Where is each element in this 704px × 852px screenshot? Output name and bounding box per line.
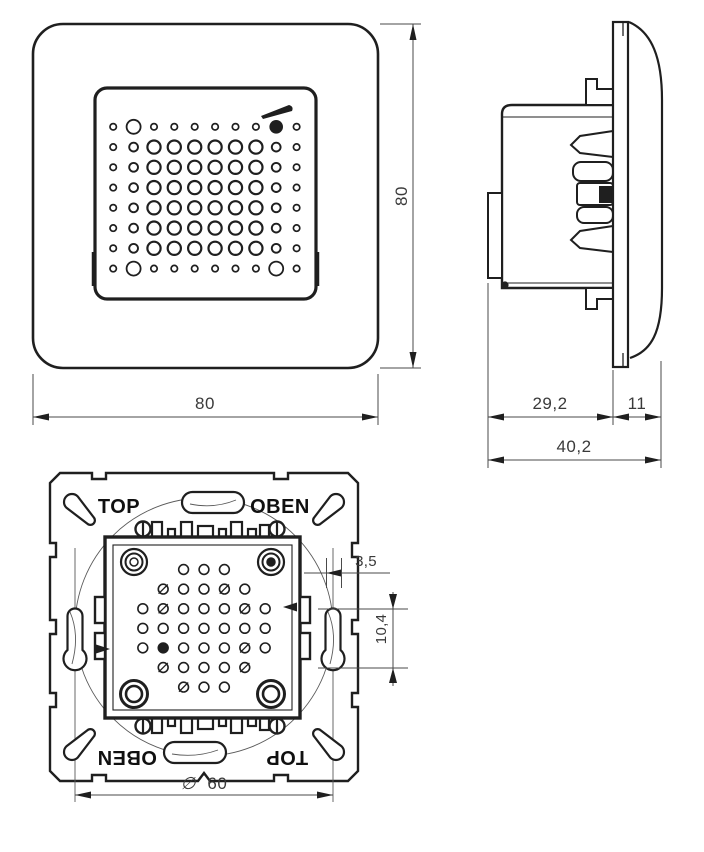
side-claw-tab-c — [577, 207, 613, 223]
dim-width-label: 80 — [195, 394, 215, 413]
boss-top-right — [258, 549, 284, 575]
center-slot-bottom — [164, 742, 226, 763]
dim-slot-width-label: 3,5 — [355, 553, 377, 570]
drawing-svg: 80 80 — [0, 0, 704, 852]
screw-slot-right — [322, 609, 345, 671]
label-oben-rotated: OBEN — [97, 746, 157, 768]
front-width-dimension: 80 — [33, 374, 378, 425]
screw-slot-left — [64, 609, 87, 671]
dim-height-label: 80 — [392, 186, 411, 206]
center-slot-top — [182, 492, 244, 513]
rear-view: TOP OBEN OBEN TOP 3,5 10,4 ∅ — [50, 473, 408, 802]
label-top-rotated: TOP — [266, 746, 308, 768]
side-depth-dimensions: 29,2 11 40,2 — [488, 283, 661, 468]
dim-diameter-label: ∅ 60 — [181, 774, 228, 793]
side-claw-screw — [599, 186, 612, 203]
grille-hole — [269, 120, 283, 134]
dim-slot-length-label: 10,4 — [373, 614, 390, 644]
side-body-corner — [501, 281, 508, 288]
label-oben: OBEN — [250, 496, 310, 518]
side-frame-plate — [613, 22, 628, 367]
label-top: TOP — [98, 496, 140, 518]
side-cover-curve — [629, 22, 662, 358]
side-terminal-block — [488, 193, 502, 278]
dim-total-depth-label: 40,2 — [556, 437, 591, 456]
side-claw-top — [586, 79, 613, 105]
terminal-hole — [158, 643, 168, 653]
dim-body-depth-label: 29,2 — [532, 394, 567, 413]
side-view: 29,2 11 40,2 — [488, 22, 662, 468]
side-claw-bottom — [586, 288, 613, 309]
technical-drawing-page: 80 80 — [0, 0, 704, 852]
dim-frame-depth-label: 11 — [628, 394, 647, 413]
front-height-dimension: 80 — [380, 24, 421, 368]
side-claw-tab-a — [573, 162, 613, 181]
front-view: 80 80 — [33, 24, 421, 425]
